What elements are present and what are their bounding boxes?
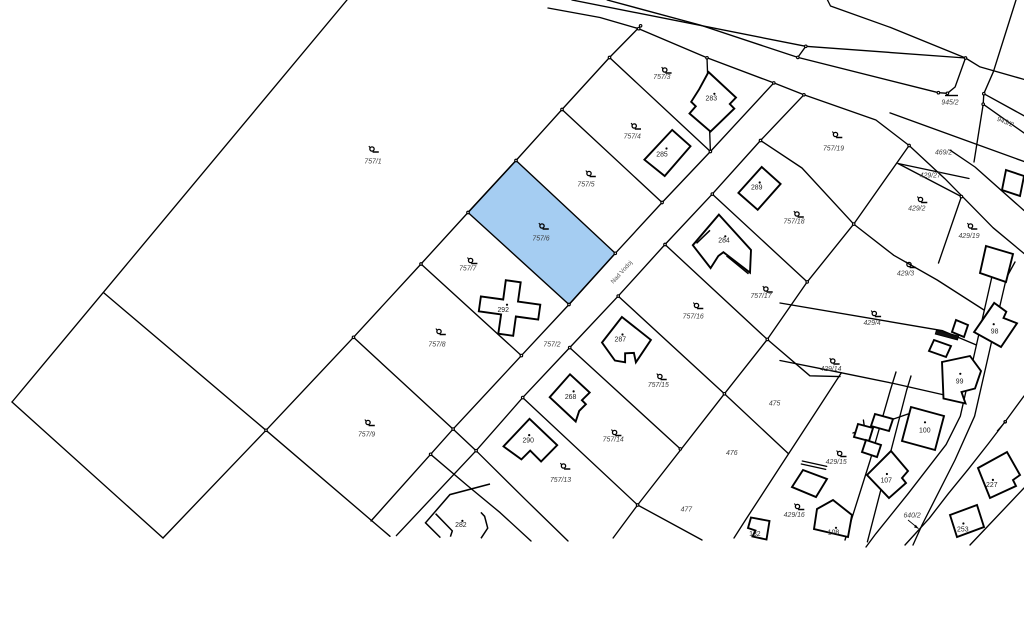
svg-text:757/19: 757/19 bbox=[823, 145, 844, 152]
svg-text:475: 475 bbox=[769, 400, 781, 407]
svg-text:284: 284 bbox=[718, 238, 730, 245]
svg-text:757/18: 757/18 bbox=[783, 218, 804, 225]
svg-text:757/15: 757/15 bbox=[648, 382, 669, 389]
svg-text:757/17: 757/17 bbox=[750, 293, 772, 300]
svg-text:99: 99 bbox=[956, 379, 964, 386]
svg-text:253: 253 bbox=[957, 526, 969, 533]
svg-text:429/2: 429/2 bbox=[908, 205, 925, 212]
svg-text:757/16: 757/16 bbox=[683, 314, 704, 321]
svg-text:227: 227 bbox=[986, 482, 998, 489]
svg-text:757/1: 757/1 bbox=[364, 158, 381, 165]
svg-text:757/13: 757/13 bbox=[550, 477, 571, 484]
svg-text:757/9: 757/9 bbox=[358, 432, 375, 439]
svg-text:287: 287 bbox=[615, 337, 627, 344]
svg-text:132: 132 bbox=[749, 531, 761, 538]
svg-text:640/2: 640/2 bbox=[903, 512, 920, 519]
svg-text:429/15: 429/15 bbox=[826, 459, 847, 466]
svg-text:285: 285 bbox=[656, 152, 668, 159]
svg-text:429/19: 429/19 bbox=[958, 233, 979, 240]
svg-text:757/5: 757/5 bbox=[577, 181, 594, 188]
svg-text:757/14: 757/14 bbox=[603, 436, 624, 443]
svg-text:429/14: 429/14 bbox=[820, 366, 841, 373]
svg-text:283: 283 bbox=[706, 96, 718, 103]
svg-text:469/2: 469/2 bbox=[935, 149, 952, 156]
svg-text:757/3: 757/3 bbox=[653, 74, 670, 81]
svg-text:292: 292 bbox=[497, 307, 509, 314]
svg-text:100: 100 bbox=[919, 428, 931, 435]
svg-text:429/16: 429/16 bbox=[784, 512, 805, 519]
svg-text:945/2: 945/2 bbox=[941, 99, 958, 106]
svg-text:757/8: 757/8 bbox=[428, 341, 445, 348]
svg-text:108: 108 bbox=[828, 530, 840, 537]
svg-text:98: 98 bbox=[991, 329, 999, 336]
svg-text:757/4: 757/4 bbox=[624, 133, 641, 140]
svg-text:757/7: 757/7 bbox=[459, 266, 477, 273]
svg-text:282: 282 bbox=[455, 522, 467, 529]
svg-text:429/3: 429/3 bbox=[897, 270, 914, 277]
svg-text:289: 289 bbox=[751, 185, 763, 192]
svg-text:757/2: 757/2 bbox=[543, 341, 560, 348]
svg-text:757/6: 757/6 bbox=[532, 235, 549, 242]
svg-text:429/4: 429/4 bbox=[863, 320, 880, 327]
svg-text:107: 107 bbox=[880, 477, 892, 484]
svg-text:476: 476 bbox=[726, 450, 738, 457]
svg-text:290: 290 bbox=[522, 438, 534, 445]
svg-text:477: 477 bbox=[681, 507, 694, 514]
svg-text:429/27: 429/27 bbox=[920, 172, 942, 179]
svg-text:268: 268 bbox=[565, 394, 577, 401]
